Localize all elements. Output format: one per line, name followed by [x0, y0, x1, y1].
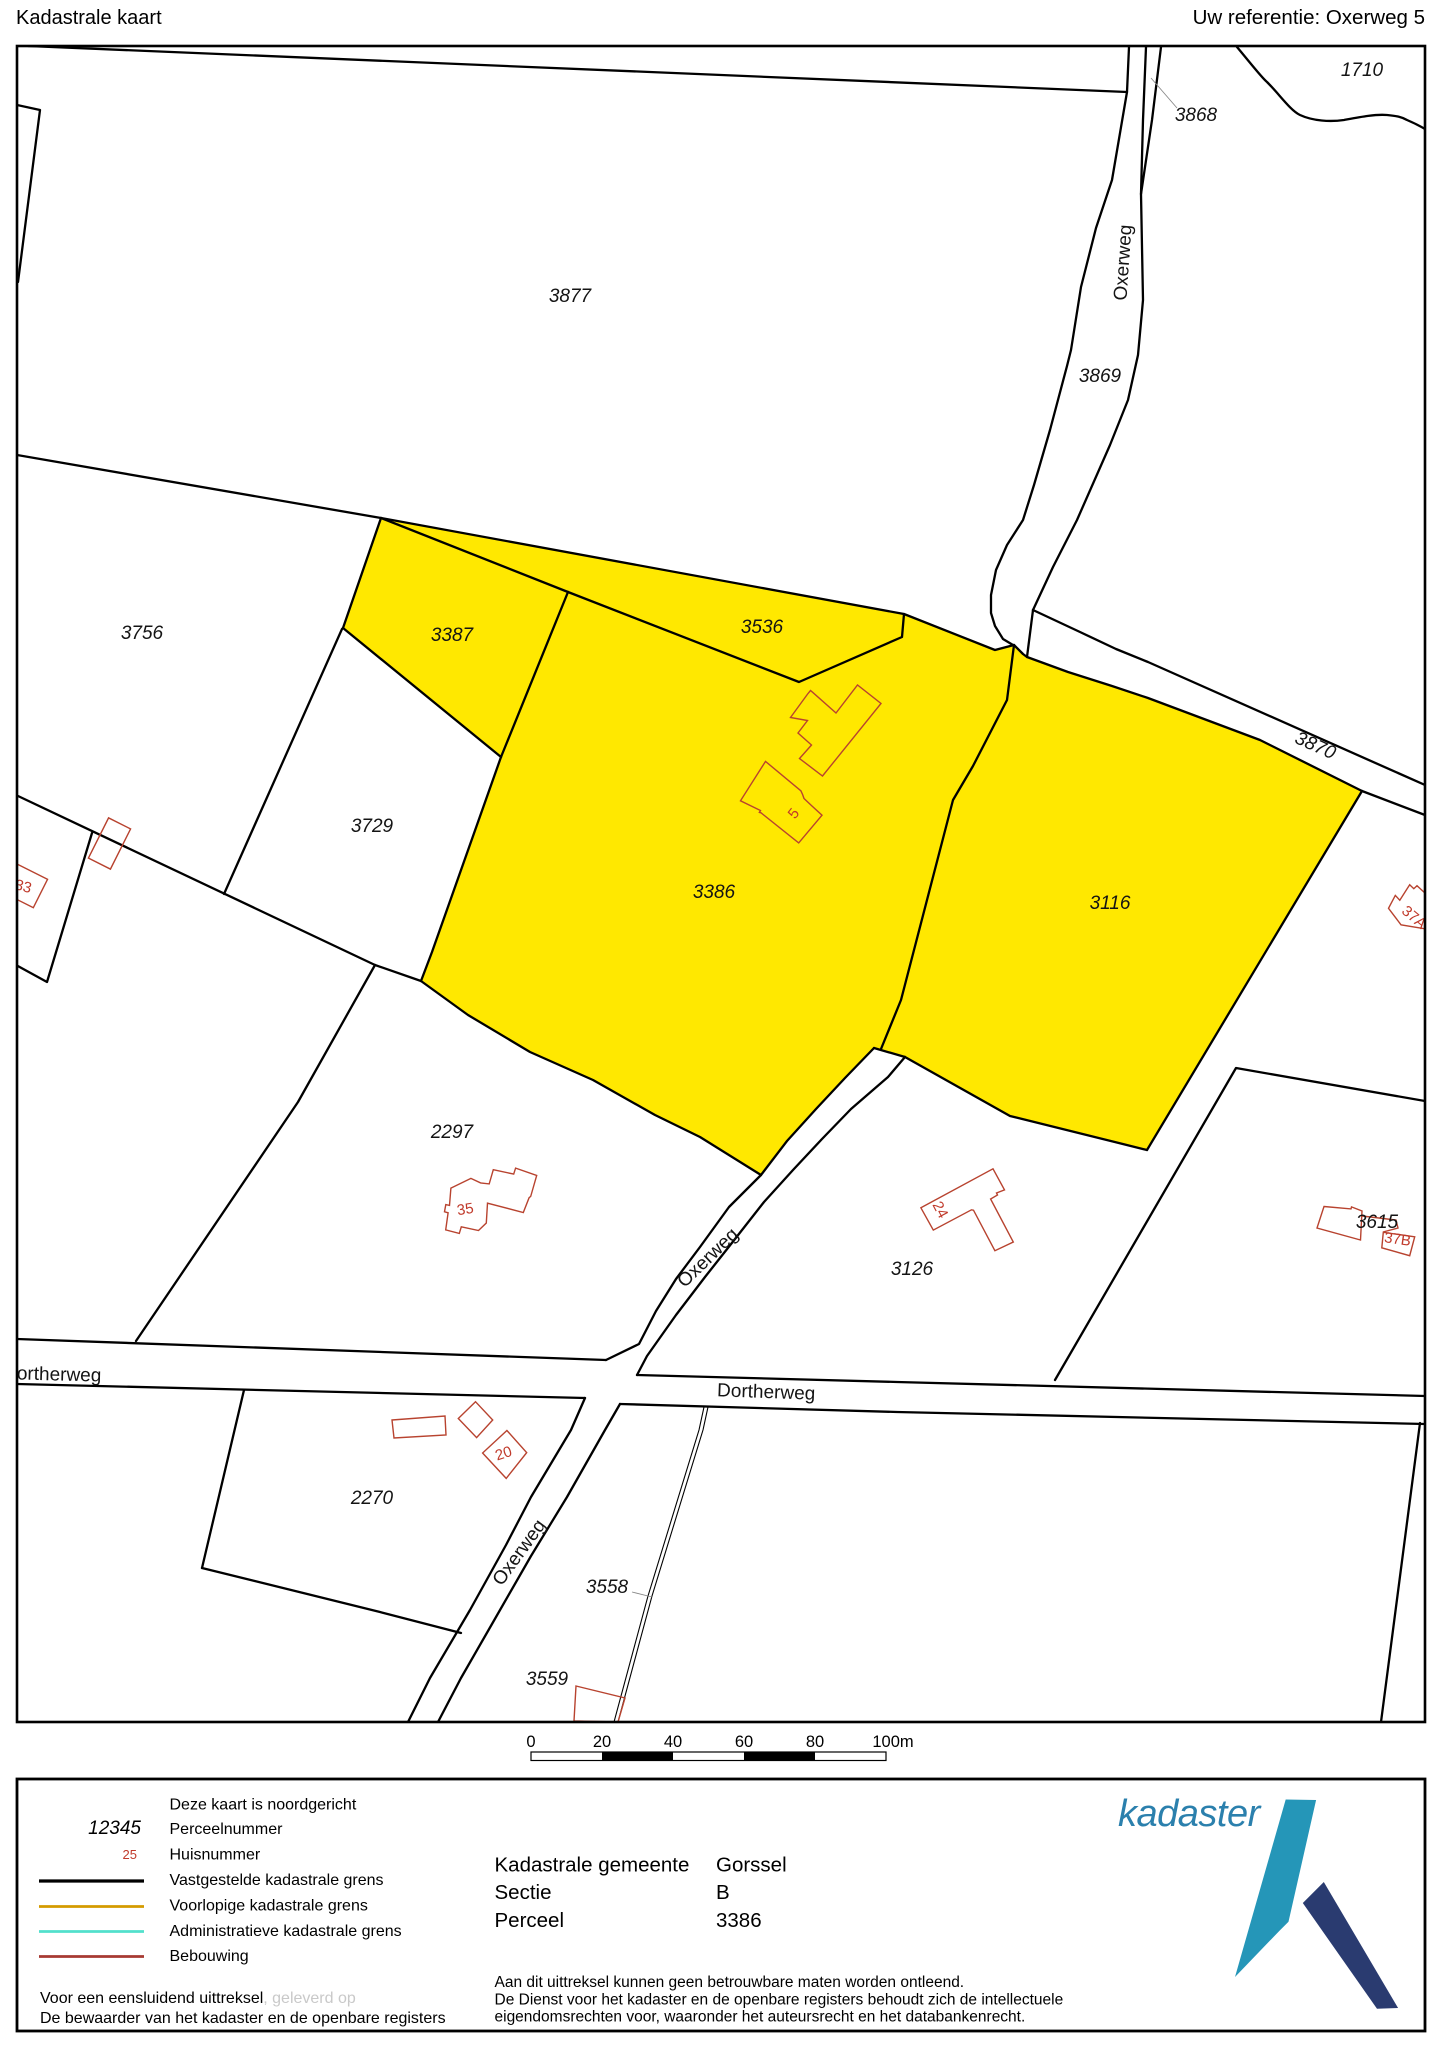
svg-text:3387: 3387	[431, 625, 475, 646]
svg-text:3559: 3559	[526, 1669, 569, 1690]
svg-text:3729: 3729	[351, 816, 394, 837]
svg-text:25: 25	[123, 1847, 137, 1862]
svg-text:3869: 3869	[1079, 366, 1122, 387]
svg-text:60: 60	[735, 1733, 753, 1751]
svg-text:Perceel: Perceel	[495, 1909, 565, 1932]
svg-text:Administratieve kadastrale gre: Administratieve kadastrale grens	[170, 1923, 402, 1940]
svg-text:De Dienst voor het kadaster en: De Dienst voor het kadaster en de openba…	[495, 1992, 1064, 2009]
svg-text:Gorssel: Gorssel	[716, 1854, 787, 1877]
svg-text:Sectie: Sectie	[495, 1881, 552, 1904]
svg-text:20: 20	[593, 1733, 611, 1751]
svg-text:Kadastrale kaart: Kadastrale kaart	[16, 7, 162, 29]
svg-text:Bebouwing: Bebouwing	[170, 1948, 249, 1965]
svg-text:3536: 3536	[741, 617, 784, 638]
svg-text:Huisnummer: Huisnummer	[170, 1847, 261, 1864]
svg-text:eigendomsrechten voor, waarond: eigendomsrechten voor, waaronder het aut…	[495, 2009, 1026, 2026]
svg-text:De bewaarder van het kadaster: De bewaarder van het kadaster en de open…	[40, 2010, 446, 2027]
svg-text:1710: 1710	[1341, 60, 1384, 81]
svg-text:Perceelnummer: Perceelnummer	[170, 1821, 284, 1838]
svg-text:0: 0	[526, 1733, 535, 1751]
svg-text:Aan dit uittreksel kunnen geen: Aan dit uittreksel kunnen geen betrouwba…	[495, 1974, 965, 1991]
svg-text:3126: 3126	[891, 1259, 934, 1280]
svg-text:Kadastrale gemeente: Kadastrale gemeente	[495, 1854, 690, 1877]
svg-text:12345: 12345	[88, 1818, 141, 1839]
svg-text:3877: 3877	[549, 286, 593, 307]
svg-text:100m: 100m	[872, 1733, 913, 1751]
svg-text:40: 40	[664, 1733, 682, 1751]
svg-text:Voorlopige kadastrale grens: Voorlopige kadastrale grens	[170, 1898, 368, 1915]
svg-text:35: 35	[456, 1200, 475, 1219]
svg-text:3386: 3386	[716, 1909, 762, 1932]
svg-text:Voor een eensluidend uittrekse: Voor een eensluidend uittreksel, gelever…	[40, 1990, 356, 2007]
svg-text:3386: 3386	[693, 882, 736, 903]
svg-text:Dortherweg: Dortherweg	[717, 1380, 816, 1404]
svg-text:Uw referentie: Oxerweg 5: Uw referentie: Oxerweg 5	[1193, 6, 1425, 29]
svg-text:2297: 2297	[430, 1122, 475, 1143]
svg-text:80: 80	[806, 1733, 824, 1751]
svg-text:2270: 2270	[350, 1488, 394, 1509]
svg-text:Vastgestelde kadastrale grens: Vastgestelde kadastrale grens	[170, 1872, 384, 1889]
svg-text:Deze kaart is noordgericht: Deze kaart is noordgericht	[170, 1797, 357, 1814]
svg-text:B: B	[716, 1881, 730, 1904]
svg-text:kadaster: kadaster	[1118, 1793, 1262, 1835]
svg-text:3116: 3116	[1090, 893, 1131, 914]
svg-text:3558: 3558	[586, 1577, 629, 1598]
svg-text:3756: 3756	[121, 623, 164, 644]
svg-text:3868: 3868	[1175, 105, 1218, 126]
